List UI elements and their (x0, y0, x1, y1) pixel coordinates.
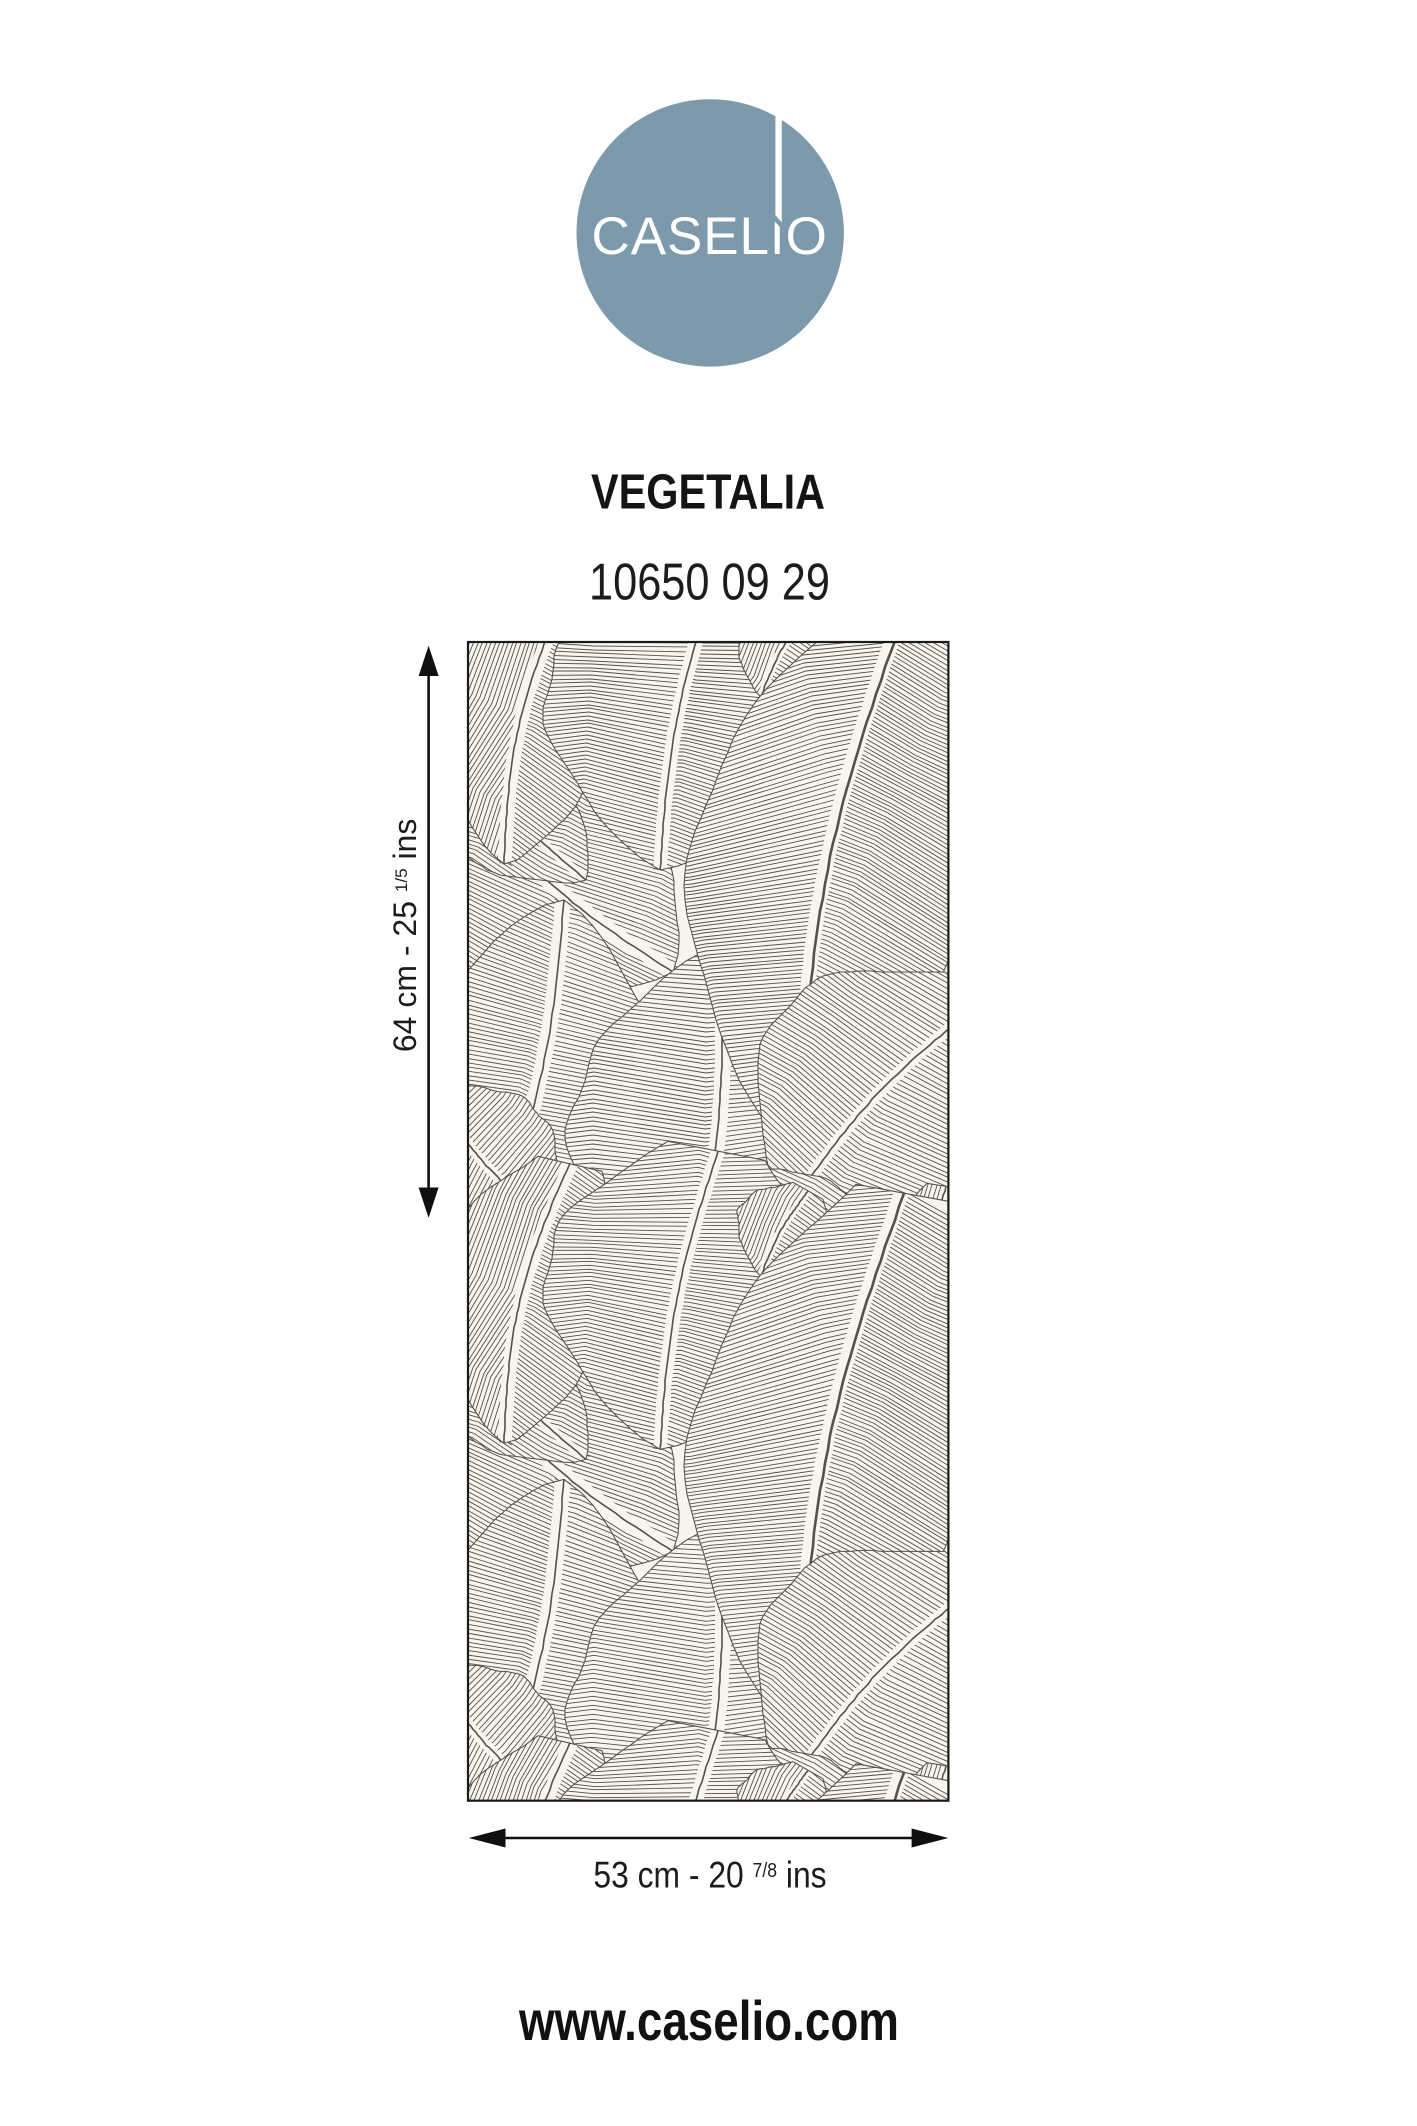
svg-text:10650 09 29: 10650 09 29 (589, 553, 830, 611)
svg-text:53 cm - 20 7/8 ins: 53 cm - 20 7/8 ins (593, 1845, 826, 1896)
svg-text:VEGETALIA: VEGETALIA (591, 466, 825, 520)
svg-text:64 cm - 25 1/5 ins: 64 cm - 25 1/5 ins (378, 819, 423, 1053)
svg-text:www.caselio.com: www.caselio.com (518, 1989, 899, 2052)
svg-text:CASELIO: CASELIO (592, 207, 829, 266)
